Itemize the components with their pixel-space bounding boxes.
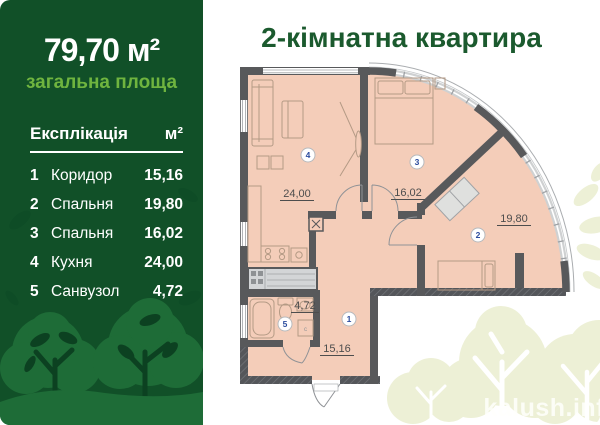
summary-panel: 79,70 м² загальна площа Експлікація м² 1… — [0, 0, 203, 425]
row-area: 4,72 — [153, 283, 183, 301]
table-row: 3 Спальня 16,02 — [30, 219, 183, 248]
room-1-badge: 1 — [342, 312, 356, 326]
table-row: 2 Спальня 19,80 — [30, 190, 183, 219]
row-area: 16,02 — [144, 225, 183, 243]
room-2-badge: 2 — [471, 228, 485, 242]
svg-text:1: 1 — [347, 314, 352, 324]
row-name: Спальня — [51, 225, 139, 243]
row-name: Санвузол — [51, 283, 148, 301]
svg-text:4: 4 — [306, 150, 311, 160]
svg-text:3: 3 — [415, 157, 420, 167]
row-number: 2 — [30, 196, 46, 214]
explication-unit-header: м² — [165, 124, 183, 144]
row-number: 3 — [30, 225, 46, 243]
room-4-badge: 4 — [301, 148, 315, 162]
room-4-area-label: 24,00 — [283, 188, 311, 200]
svg-text:2: 2 — [476, 230, 481, 240]
explication-header: Експлікація м² — [30, 124, 183, 153]
room-5-area-label: 4,72 — [294, 300, 315, 312]
room-5-badge: 5 — [278, 317, 292, 331]
row-name: Спальня — [51, 196, 139, 214]
row-number: 1 — [30, 167, 46, 185]
room-3-badge: 3 — [410, 155, 424, 169]
total-area-value: 79,70 м² — [0, 32, 203, 69]
table-row: 4 Кухня 24,00 — [30, 248, 183, 277]
plan-panel: 2-кімнатна квартира — [203, 0, 600, 425]
row-name: Коридор — [51, 167, 139, 185]
svg-text:5: 5 — [283, 319, 288, 329]
row-area: 24,00 — [144, 254, 183, 272]
room-2-area-label: 19,80 — [500, 213, 528, 225]
room-1-area-label: 15,16 — [323, 343, 351, 355]
flyer-card: 79,70 м² загальна площа Експлікація м² 1… — [0, 0, 600, 425]
room-3-area-label: 16,02 — [394, 187, 422, 199]
row-name: Кухня — [51, 254, 139, 272]
washer-label: c — [304, 327, 307, 333]
table-row: 5 Санвузол 4,72 — [30, 277, 183, 306]
explication-rows: 1 Коридор 15,16 2 Спальня 19,80 3 Спальн… — [30, 161, 183, 306]
floor-plan: c 24,00 16,02 19,80 4,72 15,16 — [203, 0, 600, 425]
watermark: kalush.inf — [483, 394, 600, 423]
explication-table: Експлікація м² 1 Коридор 15,16 2 Спальня… — [30, 124, 183, 306]
explication-title: Експлікація — [30, 124, 128, 144]
table-row: 1 Коридор 15,16 — [30, 161, 183, 190]
row-area: 19,80 — [144, 196, 183, 214]
row-number: 4 — [30, 254, 46, 272]
shaft-block — [248, 268, 317, 290]
row-number: 5 — [30, 283, 46, 301]
total-area-label: загальна площа — [0, 72, 203, 94]
plan-title: 2-кімнатна квартира — [203, 22, 600, 54]
row-area: 15,16 — [144, 167, 183, 185]
